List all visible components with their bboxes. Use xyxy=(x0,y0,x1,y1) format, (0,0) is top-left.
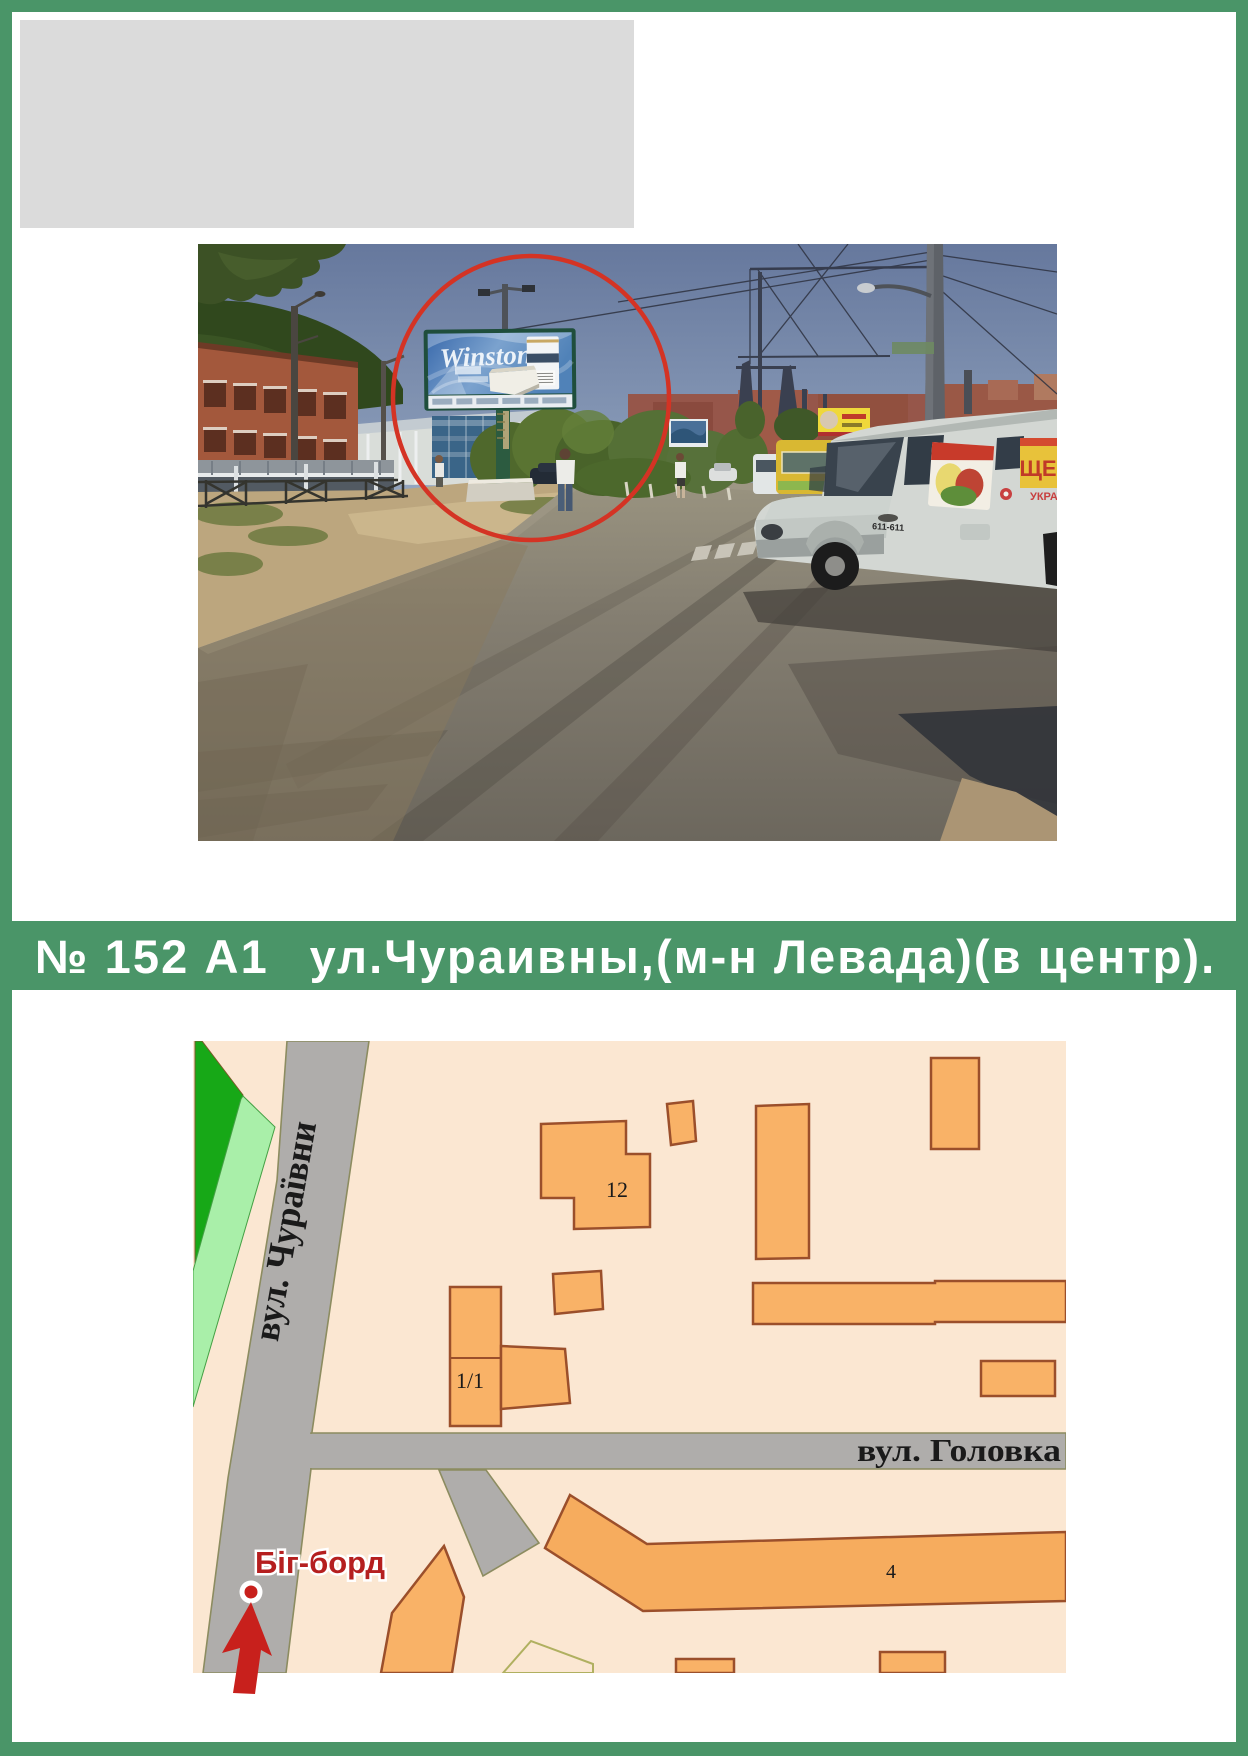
svg-text:1/1: 1/1 xyxy=(456,1368,484,1393)
svg-text:Біг-борд: Біг-борд xyxy=(255,1545,385,1580)
svg-text:УКРАЇН: УКРАЇН xyxy=(1030,490,1057,503)
svg-text:12: 12 xyxy=(606,1177,628,1202)
svg-text:вул. Головка: вул. Головка xyxy=(857,1432,1061,1468)
svg-text:4: 4 xyxy=(886,1561,896,1583)
svg-text:ЩЕ: ЩЕ xyxy=(1019,456,1056,481)
svg-text:611-611: 611-611 xyxy=(872,521,905,533)
